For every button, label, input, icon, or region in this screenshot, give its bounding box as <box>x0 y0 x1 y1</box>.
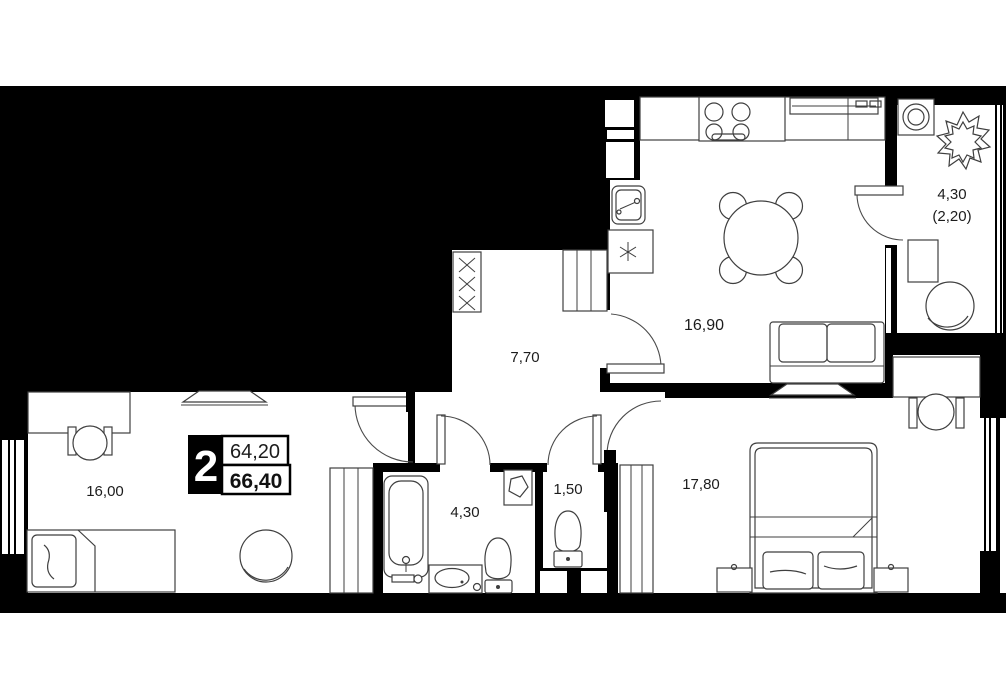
label-balcony-secondary: (2,20) <box>932 208 971 225</box>
sofa-icon <box>770 322 884 383</box>
closet-left-icon <box>330 468 373 593</box>
label-hallway: 7,70 <box>510 349 539 366</box>
toilet-bathroom-icon <box>485 538 512 593</box>
desk-right <box>893 357 980 397</box>
dining-table <box>724 201 798 275</box>
label-kitchen-living: 16,90 <box>684 317 724 334</box>
toilet-wc-icon <box>554 511 582 567</box>
wardrobe-right-icon <box>620 465 653 593</box>
hanger-wardrobe-icon <box>453 252 481 312</box>
wc-furniture <box>554 511 582 567</box>
unit-badge: 2 64,20 66,40 <box>188 435 290 494</box>
unit-badge-area-total: 66,40 <box>230 470 283 493</box>
label-bathroom: 4,30 <box>450 504 479 521</box>
single-bed-icon <box>27 530 175 592</box>
hallway-closet-icon <box>563 250 607 311</box>
fridge-icon <box>608 230 653 273</box>
label-wc: 1,50 <box>553 481 582 498</box>
round-chair-left <box>240 530 292 582</box>
vanity-sink-icon <box>429 565 482 593</box>
desk-chair-right <box>909 394 964 430</box>
kitchen-sink-icon <box>612 186 645 224</box>
unit-badge-rooms: 2 <box>194 442 218 491</box>
unit-badge-area-living: 64,20 <box>230 441 280 463</box>
small-sink-icon <box>504 470 532 505</box>
pillow-right <box>818 552 864 589</box>
window-bedroom-left <box>2 440 24 554</box>
balcony-table <box>908 240 938 282</box>
floor-plan-canvas: 16,90 7,70 16,00 4,30 1,50 17,80 4,30 (2… <box>0 0 1006 700</box>
desk-chair-left <box>68 426 112 460</box>
stove-icon <box>699 97 785 141</box>
floor-plan-svg: 16,90 7,70 16,00 4,30 1,50 17,80 4,30 (2… <box>0 0 1006 700</box>
double-bed-icon <box>750 443 877 593</box>
washing-machine-icon <box>898 99 934 135</box>
label-bedroom-right: 17,80 <box>682 476 720 493</box>
label-balcony: 4,30 <box>937 186 966 203</box>
bathtub-icon <box>384 476 428 583</box>
nightstand-left <box>717 565 752 593</box>
label-bedroom-left: 16,00 <box>86 483 124 500</box>
dining-table-set <box>720 193 803 284</box>
balcony-chair <box>926 282 974 330</box>
nightstand-right <box>874 565 908 593</box>
desk-left <box>28 392 130 433</box>
